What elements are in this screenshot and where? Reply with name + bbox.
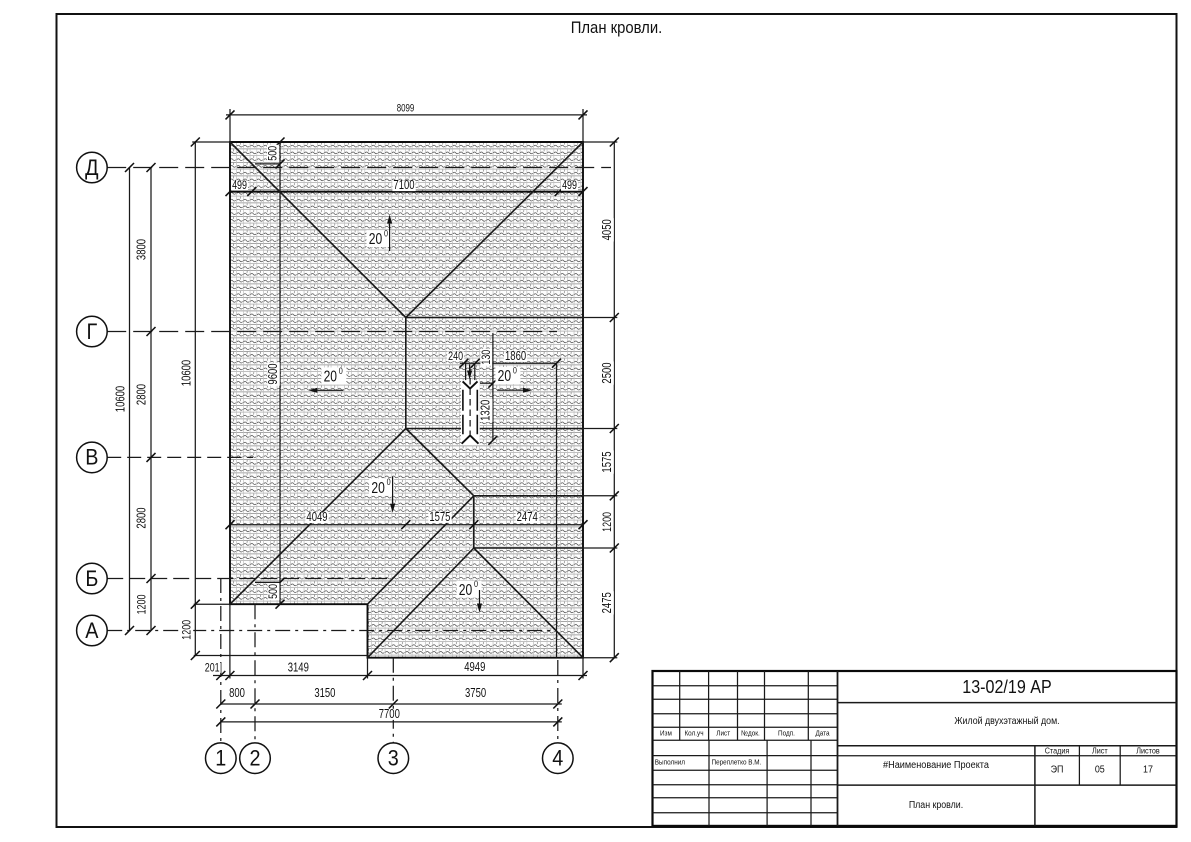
svg-text:В: В	[85, 446, 98, 470]
svg-text:17: 17	[1143, 764, 1153, 776]
svg-text:201: 201	[205, 661, 220, 675]
svg-text:3: 3	[388, 747, 399, 771]
svg-text:Листов: Листов	[1136, 746, 1159, 756]
svg-text:Подп.: Подп.	[778, 730, 795, 738]
svg-text:0: 0	[513, 364, 517, 375]
svg-text:0: 0	[339, 365, 343, 376]
svg-text:3150: 3150	[314, 687, 335, 701]
svg-text:Дата: Дата	[815, 730, 829, 738]
svg-text:Г: Г	[87, 320, 98, 344]
svg-text:13-02/19 АР: 13-02/19 АР	[962, 676, 1051, 697]
svg-text:499: 499	[562, 179, 577, 193]
svg-text:Лист: Лист	[716, 730, 731, 738]
svg-text:500: 500	[266, 146, 280, 161]
svg-text:4049: 4049	[306, 511, 327, 525]
svg-text:10600: 10600	[114, 386, 128, 412]
svg-text:ЭП: ЭП	[1051, 764, 1064, 776]
svg-text:130: 130	[480, 350, 494, 365]
svg-text:4: 4	[552, 747, 563, 771]
svg-text:0: 0	[387, 476, 391, 487]
svg-text:2800: 2800	[135, 507, 149, 528]
svg-text:4050: 4050	[601, 219, 615, 240]
svg-text:2: 2	[249, 747, 260, 771]
svg-text:2474: 2474	[517, 511, 539, 525]
svg-text:500: 500	[267, 584, 281, 599]
svg-text:20: 20	[369, 230, 383, 248]
svg-text:План кровли.: План кровли.	[909, 799, 963, 811]
svg-text:План кровли.: План кровли.	[571, 20, 663, 38]
svg-text:2500: 2500	[601, 362, 615, 383]
svg-text:1: 1	[215, 747, 226, 771]
svg-text:1200: 1200	[135, 595, 149, 615]
svg-text:Переплетко В.М.: Переплетко В.М.	[712, 759, 762, 767]
svg-text:#Наименование Проекта: #Наименование Проекта	[883, 760, 989, 772]
svg-text:3800: 3800	[135, 239, 149, 260]
svg-text:8099: 8099	[397, 102, 415, 115]
svg-text:Кол.уч: Кол.уч	[684, 730, 703, 738]
svg-text:1320: 1320	[479, 400, 493, 421]
svg-text:20: 20	[324, 367, 338, 385]
svg-text:20: 20	[371, 478, 385, 496]
svg-text:3750: 3750	[465, 687, 486, 701]
svg-text:1200: 1200	[180, 620, 194, 640]
svg-text:1860: 1860	[505, 350, 526, 364]
svg-text:7700: 7700	[379, 708, 400, 722]
svg-text:240: 240	[448, 350, 463, 364]
svg-text:1200: 1200	[601, 512, 615, 532]
svg-text:10600: 10600	[180, 360, 194, 386]
svg-text:Лист: Лист	[1092, 746, 1108, 756]
svg-text:Выполнил: Выполнил	[655, 759, 685, 767]
svg-text:1575: 1575	[429, 511, 450, 525]
svg-text:4949: 4949	[464, 661, 485, 675]
svg-text:Жилой двухэтажный дом.: Жилой двухэтажный дом.	[954, 716, 1059, 728]
svg-text:0: 0	[384, 228, 388, 239]
svg-text:Б: Б	[85, 567, 98, 591]
svg-text:2800: 2800	[135, 384, 149, 405]
svg-text:Изм: Изм	[660, 730, 672, 738]
svg-text:05: 05	[1095, 764, 1105, 776]
svg-text:499: 499	[232, 179, 247, 193]
svg-text:7100: 7100	[393, 179, 414, 193]
svg-text:20: 20	[459, 580, 473, 598]
svg-text:3149: 3149	[288, 661, 309, 675]
svg-text:А: А	[85, 619, 98, 643]
svg-text:2475: 2475	[601, 592, 615, 613]
svg-text:Стадия: Стадия	[1045, 746, 1070, 756]
svg-text:Д: Д	[85, 156, 98, 180]
svg-text:9600: 9600	[267, 363, 281, 384]
svg-text:20: 20	[498, 367, 512, 385]
svg-text:№док.: №док.	[741, 730, 760, 738]
svg-text:0: 0	[474, 578, 478, 589]
svg-text:1575: 1575	[601, 451, 615, 472]
svg-text:800: 800	[229, 687, 245, 701]
